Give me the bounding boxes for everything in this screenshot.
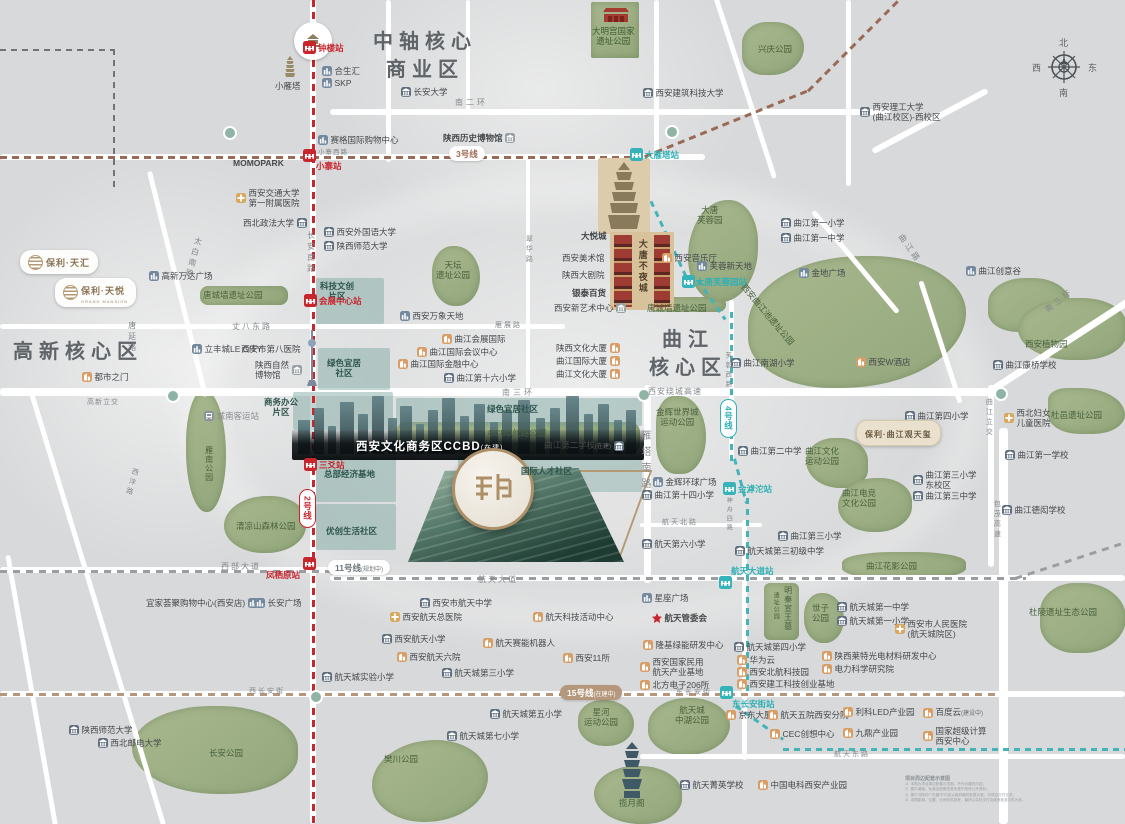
- label-text: 百度云(建设中): [936, 707, 984, 718]
- ml-icon: [192, 344, 202, 354]
- label-text: 西安外国语大学: [337, 227, 397, 237]
- metro-station-icon: [304, 458, 317, 471]
- parkd-label: 大明宫国家遗址公园: [592, 26, 635, 46]
- bz-icon: [662, 253, 672, 263]
- ml-icon: [318, 135, 328, 145]
- ml-icon: [799, 268, 809, 278]
- zone-label: 优创生活社区: [326, 526, 377, 536]
- label-text: 西北政法大学: [243, 218, 294, 228]
- label-text: 曲江国际会议中心: [430, 347, 498, 357]
- poi-label: 陕西历史博物馆: [443, 133, 515, 143]
- poi-label: 曲江文化大厦: [556, 369, 620, 379]
- sc-icon: [324, 241, 334, 251]
- road-label: 西长安街: [249, 688, 285, 696]
- label-text: 城南客运站: [217, 411, 260, 421]
- bz-icon: [417, 347, 427, 357]
- st4-label: 大雁塔站: [645, 150, 679, 160]
- label-text: 曲江会展国际: [455, 334, 506, 344]
- label-text: 金滹沱站: [738, 484, 772, 494]
- poi-label: 陕西师范大学: [324, 241, 388, 251]
- bz-icon: [737, 667, 747, 677]
- poi-label: 国家超级计算西安中心: [923, 726, 987, 746]
- label-text: 小雁塔: [275, 81, 301, 91]
- road: [999, 428, 1008, 824]
- poi-label: 中国电科西安产业园: [758, 780, 847, 790]
- label-text: 会展中心站: [319, 296, 362, 306]
- label-text: 航天菁英学校: [693, 780, 744, 790]
- parkv-label: 明秦宣王墓: [783, 586, 793, 631]
- poi-label: 航天城第五小学: [490, 709, 562, 719]
- poi-label: 小雁塔: [275, 81, 301, 91]
- park-label: 曲江文化运动公园: [805, 446, 839, 466]
- label-text: 西安航天总医院: [403, 612, 463, 622]
- label-text: 航天城第三小学: [455, 668, 515, 678]
- bz-icon: [758, 780, 768, 790]
- poi-label: 曲江国际会议中心: [417, 347, 498, 357]
- park-label: 世子公园: [812, 603, 829, 623]
- label-text: 西安市第八医院: [241, 344, 301, 354]
- roadv-label: 长安南路: [306, 231, 316, 275]
- st4-label: 航天大道站: [731, 566, 774, 576]
- road-label: 航天大道: [478, 575, 518, 585]
- bz-icon: [533, 612, 543, 622]
- metro-line-segment: [644, 89, 810, 158]
- metro-station-icon: [723, 482, 736, 495]
- bz-icon: [442, 334, 452, 344]
- road: [526, 157, 530, 389]
- label-text: 航天城第四小学: [747, 642, 807, 652]
- label-text: 西安W酒店: [869, 357, 911, 367]
- poi-label: 航天城第三小学: [442, 668, 514, 678]
- bz-icon: [822, 651, 832, 661]
- poi-label: 高新万达广场: [149, 271, 213, 281]
- park-label: 长安公园: [209, 748, 243, 758]
- poi-label: 曲江第二学校(在建): [544, 440, 624, 451]
- parkv-label: 雁南公园: [204, 446, 214, 482]
- poi-label: 曲江国际金融中心: [398, 359, 479, 369]
- poly-project-badge: 保利·曲江观天玺: [856, 420, 941, 446]
- bz-icon: [640, 662, 650, 672]
- sc-icon: [420, 598, 430, 608]
- label-text: 曲江第三中学: [926, 491, 977, 501]
- poi-label: 曲江第一小学: [781, 218, 845, 228]
- metro-line-segment: [1015, 535, 1125, 579]
- poi-label: 曲江第十四小学: [642, 490, 714, 500]
- road: [640, 754, 1125, 759]
- label-text: 金地广场: [812, 268, 846, 278]
- label-text: 航天城第七小学: [460, 731, 520, 741]
- poi-label: 西安新艺术中心: [554, 303, 626, 313]
- ml-icon: [642, 593, 652, 603]
- zone-label: 总部经济基地: [324, 469, 375, 479]
- label-text: 航天城第三初级中学: [748, 546, 825, 556]
- label-text: 航天第六小学: [655, 539, 706, 549]
- poly-project-badge: 保利·天汇: [20, 250, 98, 274]
- lanyue-pavilion-icon: [618, 742, 646, 798]
- poi-label: 西北政法大学: [243, 218, 307, 228]
- label-text: 曲江国际大厦: [556, 356, 607, 366]
- sc-icon: [643, 88, 653, 98]
- lm-label: 大悦城: [581, 231, 607, 241]
- ml-icon: [322, 66, 332, 76]
- st4-label: 金滹沱站: [738, 484, 772, 494]
- label-text: 西安美术馆: [562, 253, 605, 263]
- dtl-label: 大唐不夜城: [637, 239, 648, 294]
- poi-label: 曲江第十六小学: [444, 373, 516, 383]
- metro-line-pill: 15号线(在建中): [560, 685, 622, 700]
- compass-south: 南: [1059, 86, 1068, 99]
- road: [654, 0, 659, 158]
- poi-label: 西安万象天地: [400, 311, 464, 321]
- label-text: 三爻站: [319, 460, 345, 470]
- label-text: 凤栖原站: [266, 570, 300, 580]
- sc-icon: [98, 738, 108, 748]
- st4-label: 大唐芙蓉园站: [696, 277, 747, 287]
- park-area: [372, 740, 488, 822]
- poi-label: 西安理工大学(曲江校区)-西校区: [860, 102, 941, 122]
- project-logo-seal: [452, 448, 534, 530]
- park-label: 樊川公园: [384, 754, 418, 764]
- poi-label: 航天城第四小学: [734, 642, 806, 652]
- poi-label: 陕西自然博物馆: [255, 360, 302, 380]
- label-text: 西北邮电大学: [111, 738, 162, 748]
- bz-icon: [856, 357, 866, 367]
- label-text: 西安11所: [576, 653, 610, 663]
- hp-icon: [895, 624, 905, 634]
- bz-icon: [398, 359, 408, 369]
- sc-icon: [490, 709, 500, 719]
- label-text: 陕西历史博物馆: [443, 133, 503, 143]
- ml-icon: [322, 78, 332, 88]
- star-icon: [652, 613, 662, 623]
- label-text: 宜家荟聚购物中心(西安店): [146, 598, 245, 608]
- bz-icon: [726, 710, 736, 720]
- st4-label: 东长安街站: [732, 699, 775, 709]
- label-text: 曲江文化大厦: [556, 369, 607, 379]
- poi-label: 西安美术馆: [562, 253, 605, 263]
- road: [147, 171, 208, 397]
- park-label: 唐城墙遗址公园: [203, 290, 263, 300]
- zone-label: 国际人才社区: [521, 466, 572, 476]
- label-text: CEC创想中心: [783, 729, 835, 739]
- label-text: 航天大道站: [731, 566, 774, 576]
- bz-icon: [768, 710, 778, 720]
- label-text: 西安市人民医院(航天城院区): [908, 619, 968, 639]
- metro-line-segment: [0, 693, 1000, 696]
- poi-label: 西安市第八医院: [241, 344, 301, 354]
- poi-label: 西北妇女儿童医院: [1004, 408, 1051, 428]
- label-text: 陕西师范大学: [337, 241, 388, 251]
- poi-label: 西安北航科技园: [737, 667, 809, 677]
- sc-icon: [401, 87, 411, 97]
- poi-label: 西安交通大学第一附属医院: [236, 188, 300, 208]
- roadv-label: 西沣路: [123, 467, 139, 498]
- label-text: 航天五院西安分院: [781, 710, 849, 720]
- metro-station-icon: [719, 576, 732, 589]
- label-text: 中国电科西安产业园: [771, 780, 848, 790]
- poi-label: 曲江第三小学: [778, 531, 842, 541]
- park-label: 大唐芙蓉园: [697, 205, 723, 225]
- poi-label: 曲江会展国际: [442, 334, 506, 344]
- sc-icon: [860, 107, 870, 117]
- sc-icon: [781, 233, 791, 243]
- hp-icon: [390, 612, 400, 622]
- poi-label: 宜家荟聚购物中心(西安店): [146, 598, 258, 608]
- poi-label: 西安市航天中学: [420, 598, 492, 608]
- label-text: 曲江德闳学校: [1015, 505, 1066, 515]
- label-text: 西安航天小学: [395, 634, 446, 644]
- poi-label: 曲江第一学校: [1005, 450, 1069, 460]
- hp-icon: [1004, 413, 1014, 423]
- sc-icon: [382, 634, 392, 644]
- sc-icon: [913, 475, 923, 485]
- bz-icon: [843, 728, 853, 738]
- poi-label: 西安航天总医院: [390, 612, 462, 622]
- label-text: 钟楼站: [318, 43, 344, 53]
- label-text: 西安新艺术中心: [554, 303, 614, 313]
- road-label: 东长安街: [676, 689, 712, 697]
- poi-label: 航天管委会: [652, 613, 707, 623]
- park-label: 揽月阁: [619, 798, 645, 808]
- poi-label: 西安航天小学: [382, 634, 446, 644]
- poi-label: 陕西师范大学: [69, 725, 133, 735]
- sc-icon: [913, 491, 923, 501]
- bz-icon: [82, 372, 92, 382]
- compass: 北 南 西 东: [1032, 36, 1096, 98]
- label-text: 银泰百货: [572, 288, 606, 298]
- label-text: 曲江第十四小学: [655, 490, 715, 500]
- poi-label: 长安广场: [255, 598, 302, 608]
- sc-icon: [837, 602, 847, 612]
- bz-icon: [610, 356, 620, 366]
- poi-label: 西安外国语大学: [324, 227, 396, 237]
- compass-east: 东: [1088, 61, 1097, 74]
- poi-label: 京东大厦: [726, 710, 773, 720]
- poi-label: 西安国家民用航天产业基地: [640, 657, 704, 677]
- bz-icon: [610, 369, 620, 379]
- sc-icon: [322, 672, 332, 682]
- bz-icon: [483, 638, 493, 648]
- poi-label: 利科LED产业园: [843, 707, 915, 717]
- label-text: 曲江康桥学校: [1006, 360, 1057, 370]
- label-text: 赛格国际购物中心: [331, 135, 399, 145]
- poi-label: 星座广场: [642, 593, 689, 603]
- poi-label: 曲江第三中学: [913, 491, 977, 501]
- poi-label: CEC创想中心: [770, 729, 834, 739]
- label-text: 航天城第五小学: [503, 709, 563, 719]
- sc-icon: [734, 642, 744, 652]
- poi-label: 曲江第三小学东校区: [913, 470, 977, 490]
- bz-icon: [822, 664, 832, 674]
- label-text: 曲江第一学校: [1018, 450, 1069, 460]
- poi-label: 航天科技活动中心: [533, 612, 614, 622]
- st2-label: 凤栖原站: [266, 570, 300, 580]
- poi-label: 陕西文化大厦: [556, 343, 620, 353]
- poly-logo-icon: [63, 285, 78, 300]
- poi-label: 西安11所: [563, 653, 610, 663]
- bz-icon: [640, 680, 650, 690]
- label-text: 西安建工科技创业基地: [750, 679, 835, 689]
- label-text: 西安万象天地: [413, 311, 464, 321]
- metro-line-pill: 2号线: [300, 490, 315, 527]
- poi-label: 西安建工科技创业基地: [737, 679, 835, 689]
- poi-label: 曲江康桥学校: [993, 360, 1057, 370]
- poi-label: 陕西大剧院: [562, 270, 605, 280]
- label-text: 航天管委会: [665, 613, 708, 623]
- poi-label: 曲江国际大厦: [556, 356, 620, 366]
- poi-label: 航天城实验小学: [322, 672, 394, 682]
- metro-line-segment: [807, 0, 904, 92]
- label-text: 陕西文化大厦: [556, 343, 607, 353]
- park-area: [1040, 583, 1125, 653]
- metro-line-pill: 4号线: [721, 400, 736, 437]
- zone-label: 绿色宜居社区: [327, 358, 361, 378]
- giant-wild-goose-pagoda-icon: [598, 158, 650, 234]
- label-text: 陕西大剧院: [562, 270, 605, 280]
- park-label: CCBD丝路公园: [488, 428, 546, 438]
- poi-label: SKP: [322, 78, 352, 88]
- label-text: 金辉环球广场: [666, 477, 717, 487]
- poi-label: 航天菁英学校: [680, 780, 744, 790]
- poi-label: 芙蓉新天地: [697, 261, 752, 271]
- legend-title: 项目周边配套示意图: [905, 775, 1120, 782]
- metro-station-icon: [682, 275, 695, 288]
- poi-label: 城南客运站: [204, 411, 259, 421]
- sc-icon: [680, 780, 690, 790]
- xian-project-location-map: 西安文化商务区CCBD(在建) 北 南 西 东 合生汇SKP长安大学南二环赛格国…: [0, 0, 1125, 824]
- poi-label: 赛格国际购物中心: [318, 135, 399, 145]
- sc-icon: [324, 227, 334, 237]
- zone-label: 绿色宜居社区: [487, 404, 538, 414]
- label-text: 大雁塔站: [645, 150, 679, 160]
- metro-line-pill: 3号线: [449, 146, 485, 161]
- label-text: 曲江国际金融中心: [411, 359, 479, 369]
- metro-line-pill: 11号线(规划中): [328, 560, 390, 575]
- sc-icon: [69, 725, 79, 735]
- region-label: 曲江核心区: [628, 326, 748, 382]
- poi-label: 金辉环球广场: [653, 477, 717, 487]
- junction-dot: [665, 125, 679, 139]
- road-label: 航天东路: [834, 751, 870, 759]
- sc-icon: [444, 373, 454, 383]
- road-label: 南二环: [455, 98, 488, 108]
- road-label: 小寨西路: [318, 149, 348, 157]
- label-text: 曲江第一小学: [794, 218, 845, 228]
- bz-icon: [737, 679, 747, 689]
- metro-line-segment: [113, 49, 115, 187]
- park-label: 金辉世界城运动公园: [656, 407, 699, 427]
- label-text: 陕西莱特光电材料研发中心: [835, 651, 937, 661]
- label-text: 曲江第十六小学: [457, 373, 517, 383]
- bz-icon: [843, 707, 853, 717]
- label-text: 西安理工大学(曲江校区)-西校区: [873, 102, 941, 122]
- label-text: 隆基绿能研发中心: [656, 640, 724, 650]
- poi-label: 北方电子206所: [640, 680, 709, 690]
- ml-icon: [966, 266, 976, 276]
- poi-label: 百度云(建设中): [923, 707, 983, 718]
- junction-dot: [994, 387, 1008, 401]
- bz-icon: [643, 640, 653, 650]
- label-text: 西安建筑科技大学: [656, 88, 724, 98]
- park-label: 曲江花影公园: [866, 561, 917, 571]
- label-text: 北方电子206所: [653, 680, 710, 690]
- bz-icon: [563, 653, 573, 663]
- hp-icon: [236, 193, 246, 203]
- junction-dot: [223, 126, 237, 140]
- label-text: 西安交通大学第一附属医院: [249, 188, 300, 208]
- road-label: 航天北路: [662, 519, 698, 527]
- poi-label: 西安W酒店: [856, 357, 911, 367]
- label-text: 曲江创意谷: [979, 266, 1022, 276]
- metro-line-segment: [334, 577, 1026, 580]
- park-label: 航天城中湖公园: [675, 705, 709, 725]
- junction-dot: [309, 690, 323, 704]
- region-label: 中轴核心商业区: [355, 28, 495, 84]
- zone-label: 商务办公片区: [264, 397, 298, 417]
- poi-label: 航天赛能机器人: [483, 638, 555, 648]
- mu-icon: [505, 133, 515, 143]
- tv-tower-icon: [305, 330, 319, 386]
- poi-label: 九鼎产业园: [843, 728, 898, 738]
- ml-icon: [400, 311, 410, 321]
- road: [330, 109, 890, 115]
- poi-label: 曲江第二中学: [738, 446, 802, 456]
- poi-label: 曲江创意谷: [966, 266, 1021, 276]
- park-label: 清凉山森林公园: [236, 521, 296, 531]
- label-text: 星座广场: [655, 593, 689, 603]
- label-text: 长安广场: [268, 598, 302, 608]
- sc-icon: [1005, 450, 1015, 460]
- label-text: 航天科技活动中心: [546, 612, 614, 622]
- poi-label: 电力科学研究院: [822, 664, 894, 674]
- label-text: 西安北航科技园: [750, 667, 810, 677]
- poi-label: 都市之门: [82, 372, 129, 382]
- roadv-label: 翠华路: [524, 235, 532, 265]
- st2-label: 三爻站: [319, 460, 345, 470]
- label-text: 芙蓉新天地: [710, 261, 753, 271]
- sc-icon: [993, 360, 1003, 370]
- poi-label: 长安大学: [401, 87, 448, 97]
- metro-station-icon: [304, 294, 317, 307]
- park-area: [764, 583, 799, 640]
- metro-station-icon: [303, 149, 316, 162]
- st2-label: 会展中心站: [319, 296, 362, 306]
- sc-icon: [614, 441, 624, 451]
- park-label: 天坛遗址公园: [436, 260, 470, 280]
- metro-station-icon: [720, 686, 733, 699]
- label-text: 西安市航天中学: [433, 598, 493, 608]
- parkv-label: 遗址公园: [771, 592, 778, 620]
- small-wild-goose-pagoda-icon: [282, 56, 298, 80]
- roadv-label: 雁塔南路: [638, 430, 650, 494]
- poi-label: 金地广场: [799, 268, 846, 278]
- poi-label: 航天城第一中学: [837, 602, 909, 612]
- bz-icon: [923, 708, 933, 718]
- sc-icon: [297, 218, 307, 228]
- junction-dot: [166, 389, 180, 403]
- compass-west: 西: [1032, 61, 1041, 74]
- label-text: 小寨站: [316, 161, 342, 171]
- metro-station-icon: [303, 41, 316, 54]
- legend-disclaimer: 项目周边配套示意图 1）本图为项目周边配套示意图，不作为要约内容；2）图中道路、…: [905, 775, 1120, 804]
- poi-label: MOMOPARK: [233, 158, 284, 168]
- sc-icon: [778, 531, 788, 541]
- label-text: 航天城实验小学: [335, 672, 395, 682]
- label-text: 九鼎产业园: [856, 728, 899, 738]
- sc-icon: [738, 446, 748, 456]
- label-text: 航天赛能机器人: [496, 638, 556, 648]
- lm-label: 银泰百货: [572, 288, 606, 298]
